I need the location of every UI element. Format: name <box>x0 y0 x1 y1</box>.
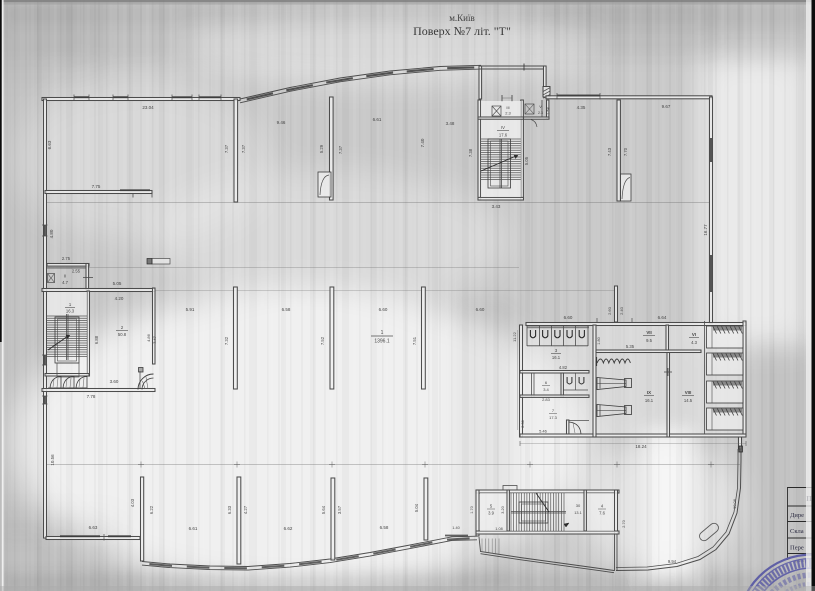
svg-text:23.04: 23.04 <box>142 105 154 110</box>
svg-text:VII: VII <box>646 330 651 335</box>
svg-text:7.43: 7.43 <box>607 147 612 156</box>
svg-text:5.64: 5.64 <box>321 505 326 514</box>
svg-text:10.56: 10.56 <box>50 454 55 466</box>
svg-text:50.8: 50.8 <box>118 332 127 337</box>
svg-text:7.37: 7.37 <box>241 144 246 153</box>
svg-text:7.78: 7.78 <box>87 394 96 399</box>
svg-text:6.61: 6.61 <box>189 526 198 531</box>
svg-text:1.80: 1.80 <box>597 337 601 344</box>
svg-text:3.20: 3.20 <box>501 506 505 513</box>
svg-text:IV: IV <box>501 125 505 130</box>
svg-text:6.88: 6.88 <box>94 335 99 344</box>
svg-text:7.37: 7.37 <box>224 144 229 153</box>
svg-text:18.24: 18.24 <box>635 444 647 449</box>
svg-text:м.Київ: м.Київ <box>449 13 475 23</box>
svg-text:6.60: 6.60 <box>379 307 388 312</box>
svg-text:13.1: 13.1 <box>574 511 581 515</box>
svg-text:2.3: 2.3 <box>505 111 511 116</box>
svg-text:4.35: 4.35 <box>577 105 586 110</box>
svg-text:10.06: 10.06 <box>732 498 737 509</box>
svg-text:2.40: 2.40 <box>619 306 624 315</box>
svg-text:6.61: 6.61 <box>373 117 382 122</box>
svg-text:3.43: 3.43 <box>492 204 501 209</box>
svg-text:17.6: 17.6 <box>499 133 508 138</box>
svg-text:7.70: 7.70 <box>623 147 628 156</box>
svg-text:6.62: 6.62 <box>284 526 293 531</box>
svg-text:6.58: 6.58 <box>380 525 389 530</box>
svg-text:Скла: Скла <box>790 528 804 535</box>
svg-text:6.64: 6.64 <box>658 315 667 320</box>
svg-text:1.40: 1.40 <box>452 526 459 530</box>
svg-text:4.20: 4.20 <box>115 296 124 301</box>
svg-text:9.5: 9.5 <box>646 338 652 343</box>
svg-text:3.9: 3.9 <box>488 511 494 516</box>
svg-text:6.60: 6.60 <box>564 315 573 320</box>
svg-text:VIII: VIII <box>685 390 692 395</box>
svg-text:6.33: 6.33 <box>227 505 232 514</box>
svg-text:1396.1: 1396.1 <box>374 339 390 345</box>
svg-text:1.70: 1.70 <box>470 506 474 513</box>
svg-text:16.1: 16.1 <box>552 355 561 360</box>
svg-text:9.94: 9.94 <box>668 559 677 564</box>
svg-text:6.60: 6.60 <box>476 307 485 312</box>
svg-text:7.75: 7.75 <box>92 184 101 189</box>
svg-text:7.37: 7.37 <box>338 145 343 154</box>
svg-text:7.51: 7.51 <box>412 336 417 345</box>
svg-text:2.70: 2.70 <box>622 520 626 527</box>
svg-text:Дире: Дире <box>790 512 804 519</box>
svg-text:6.58: 6.58 <box>282 307 291 312</box>
svg-text:1.58: 1.58 <box>547 107 551 114</box>
svg-text:II: II <box>64 274 66 279</box>
svg-text:17.3: 17.3 <box>549 415 558 420</box>
svg-text:3.57: 3.57 <box>337 505 342 514</box>
svg-text:7.38: 7.38 <box>468 148 473 157</box>
svg-text:3.60: 3.60 <box>110 379 119 384</box>
svg-text:5.05: 5.05 <box>113 281 122 286</box>
svg-text:1.08: 1.08 <box>495 527 502 531</box>
svg-text:4.7: 4.7 <box>62 280 68 285</box>
svg-text:30: 30 <box>576 503 581 508</box>
svg-text:4.82: 4.82 <box>559 365 568 370</box>
svg-text:1: 1 <box>381 330 384 336</box>
svg-text:3.4: 3.4 <box>543 387 549 392</box>
svg-text:2.60: 2.60 <box>607 306 612 315</box>
svg-text:7.40: 7.40 <box>420 138 425 147</box>
svg-text:2.55: 2.55 <box>72 269 81 274</box>
svg-text:III: III <box>506 105 509 110</box>
svg-text:2.83: 2.83 <box>542 397 551 402</box>
svg-text:7.32: 7.32 <box>224 336 229 345</box>
svg-text:9.67: 9.67 <box>662 104 671 109</box>
svg-text:2.36: 2.36 <box>521 420 525 427</box>
svg-text:7.47: 7.47 <box>152 335 157 344</box>
svg-text:5.91: 5.91 <box>186 307 195 312</box>
svg-text:2.75: 2.75 <box>62 256 71 261</box>
svg-text:3.48: 3.48 <box>446 121 455 126</box>
svg-text:VI: VI <box>692 332 696 337</box>
svg-text:4.27: 4.27 <box>243 505 248 514</box>
svg-text:14.5: 14.5 <box>684 398 693 403</box>
svg-text:9.46: 9.46 <box>277 120 286 125</box>
svg-text:16.1: 16.1 <box>645 398 654 403</box>
svg-text:4.3: 4.3 <box>691 340 697 345</box>
svg-text:7.6: 7.6 <box>599 511 605 516</box>
svg-text:2.3: 2.3 <box>538 111 543 115</box>
svg-text:11.22: 11.22 <box>512 331 517 341</box>
svg-text:4.86: 4.86 <box>146 333 151 342</box>
svg-text:V: V <box>539 105 542 109</box>
svg-text:5.29: 5.29 <box>319 144 324 153</box>
svg-text:5.46: 5.46 <box>539 429 548 434</box>
svg-text:Поверх №7 літ. "Т": Поверх №7 літ. "Т" <box>413 24 511 38</box>
svg-text:IX: IX <box>647 390 651 395</box>
svg-text:4.03: 4.03 <box>130 498 135 507</box>
svg-text:5.35: 5.35 <box>626 344 635 349</box>
svg-text:5.05: 5.05 <box>524 156 529 165</box>
svg-text:5.04: 5.04 <box>414 503 419 512</box>
svg-text:16.77: 16.77 <box>703 224 708 236</box>
svg-text:6.63: 6.63 <box>89 525 98 530</box>
svg-text:7.52: 7.52 <box>320 336 325 345</box>
svg-text:Пере: Пере <box>790 545 804 552</box>
svg-text:6.63: 6.63 <box>47 140 52 149</box>
svg-text:4.80: 4.80 <box>49 229 54 238</box>
svg-text:16.3: 16.3 <box>66 309 75 314</box>
svg-text:6.22: 6.22 <box>149 505 154 514</box>
